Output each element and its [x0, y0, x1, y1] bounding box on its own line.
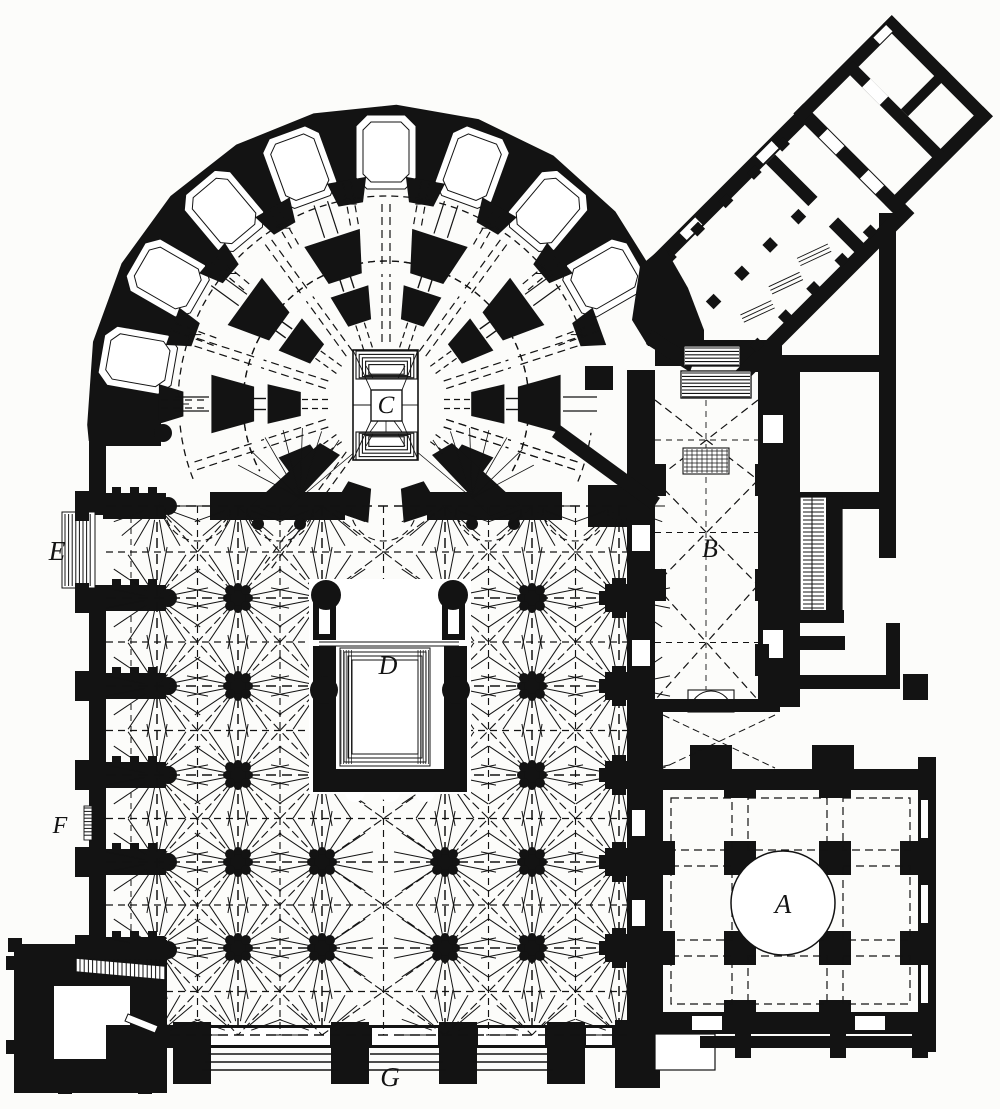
svg-text:B: B [702, 534, 718, 563]
svg-text:C: C [378, 392, 395, 419]
svg-text:D: D [378, 651, 398, 680]
svg-text:A: A [773, 889, 792, 919]
svg-text:E: E [48, 536, 66, 566]
svg-text:F: F [52, 813, 68, 839]
svg-text:G: G [380, 1062, 400, 1092]
